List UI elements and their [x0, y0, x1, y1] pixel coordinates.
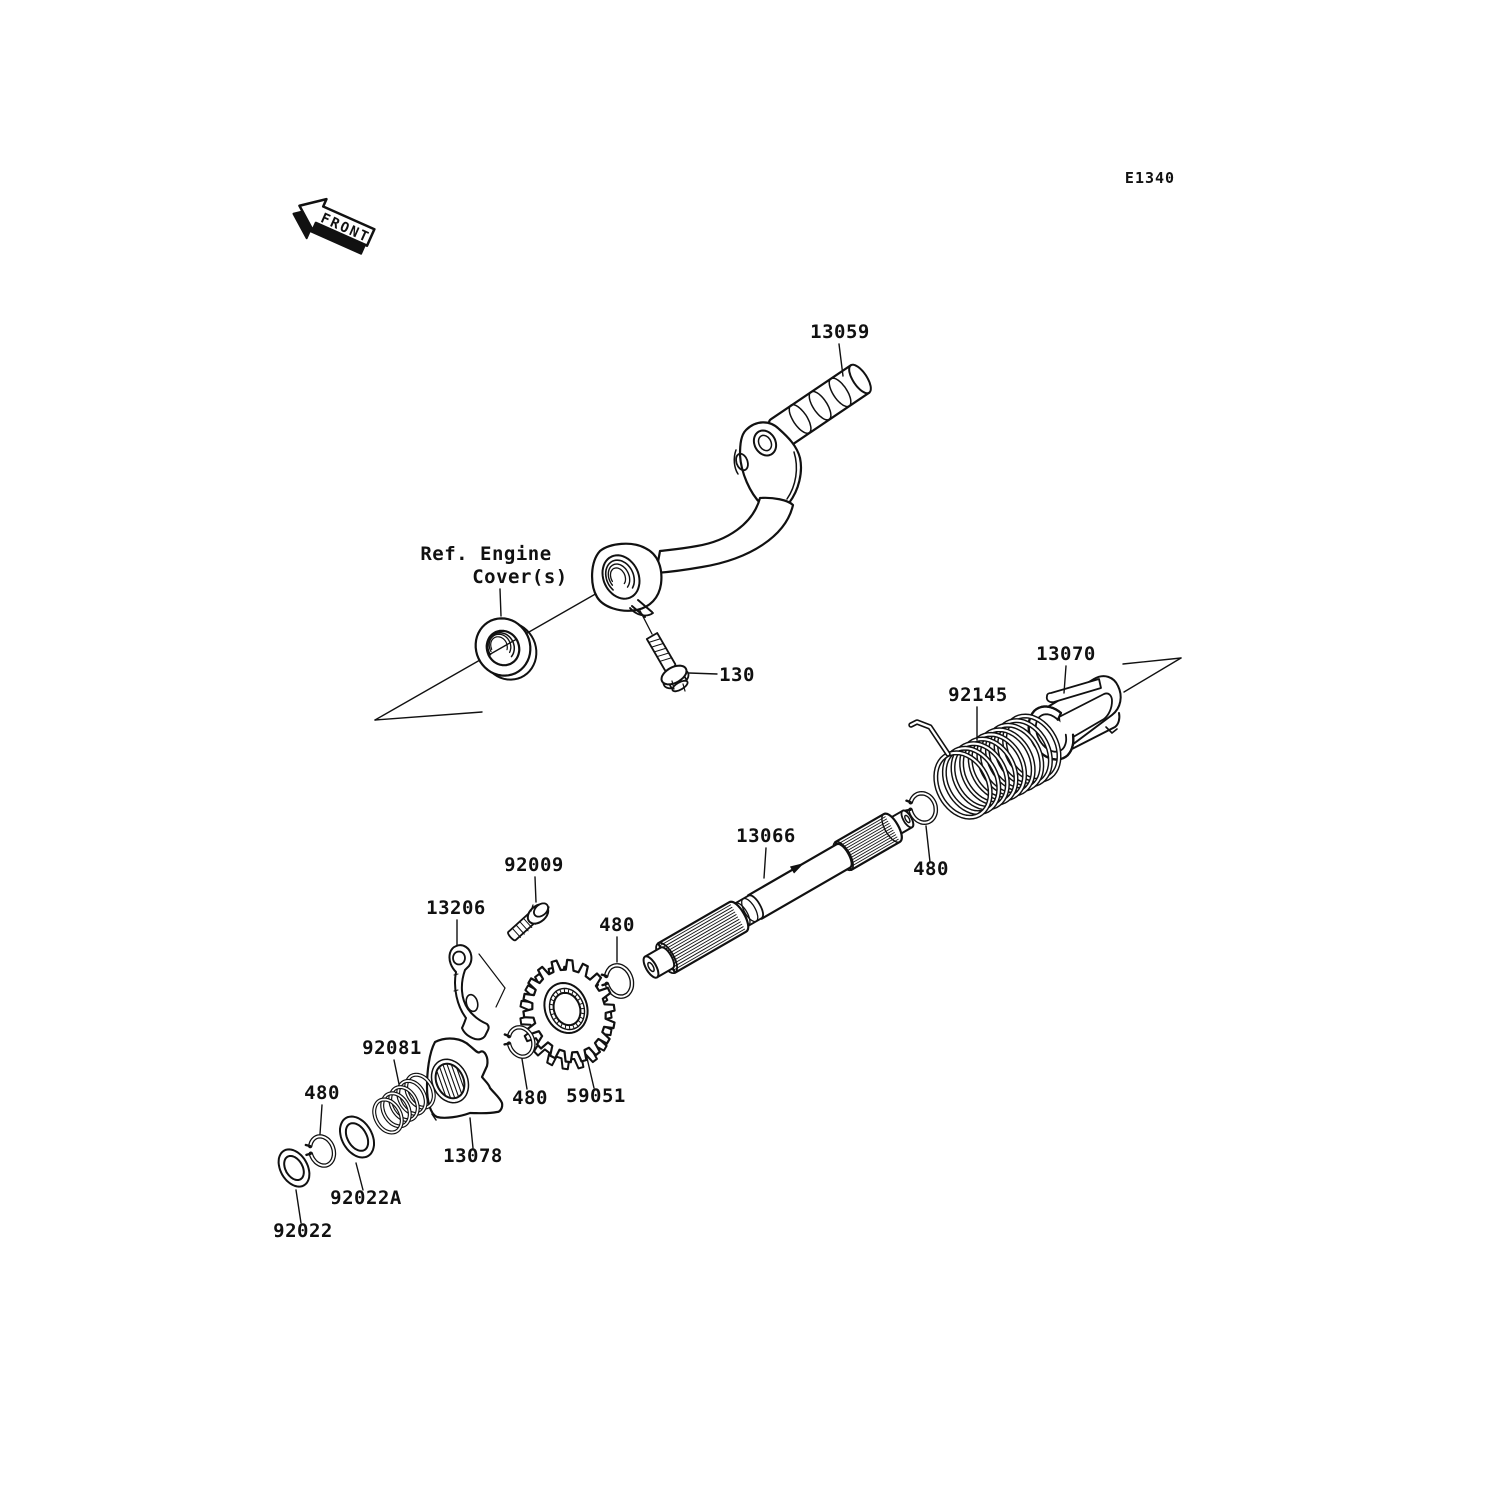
callout-59051: 59051 [566, 1085, 626, 1107]
callout-13066: 13066 [736, 825, 796, 847]
callout-92022A: 92022A [330, 1187, 402, 1209]
callout-13078: 13078 [443, 1145, 503, 1167]
page-code: E1340 [1125, 169, 1175, 187]
kick-pedal-13059 [592, 365, 871, 617]
ratchet-spring-92081 [374, 1075, 434, 1133]
callout-480-gear-left: 480 [512, 1087, 548, 1109]
ref-note-line1: Ref. Engine [420, 543, 551, 565]
washer-92022A [340, 1117, 374, 1158]
callout-13070: 13070 [1036, 643, 1096, 665]
callout-92009: 92009 [504, 854, 564, 876]
engine-cover-ring [476, 618, 537, 679]
circlip-480-left [306, 1136, 334, 1165]
ratchet-13078 [427, 1039, 502, 1120]
callout-480-shaft: 480 [913, 858, 949, 880]
callout-13059: 13059 [810, 321, 870, 343]
ref-note-line2: Cover(s) [472, 566, 568, 588]
callout-92145: 92145 [948, 684, 1008, 706]
exploded-view-drawing: 13059 130 13070 92145 480 13066 92009 13… [0, 0, 1500, 1500]
callout-92081: 92081 [362, 1037, 422, 1059]
kick-gear-59051 [520, 960, 614, 1069]
callout-480-gear-right: 480 [599, 914, 635, 936]
spring-guide-13070 [1029, 676, 1121, 759]
callout-480-left: 480 [304, 1082, 340, 1104]
circlip-480-gear-left [505, 1027, 534, 1056]
pedal-bolt-130 [647, 633, 689, 691]
parts-diagram-page: 13059 130 13070 92145 480 13066 92009 13… [0, 0, 1500, 1500]
callout-92022: 92022 [273, 1220, 333, 1242]
bolt-92009 [508, 903, 549, 940]
washer-92022 [279, 1149, 310, 1186]
callout-13206: 13206 [426, 897, 486, 919]
callout-130: 130 [719, 664, 755, 686]
